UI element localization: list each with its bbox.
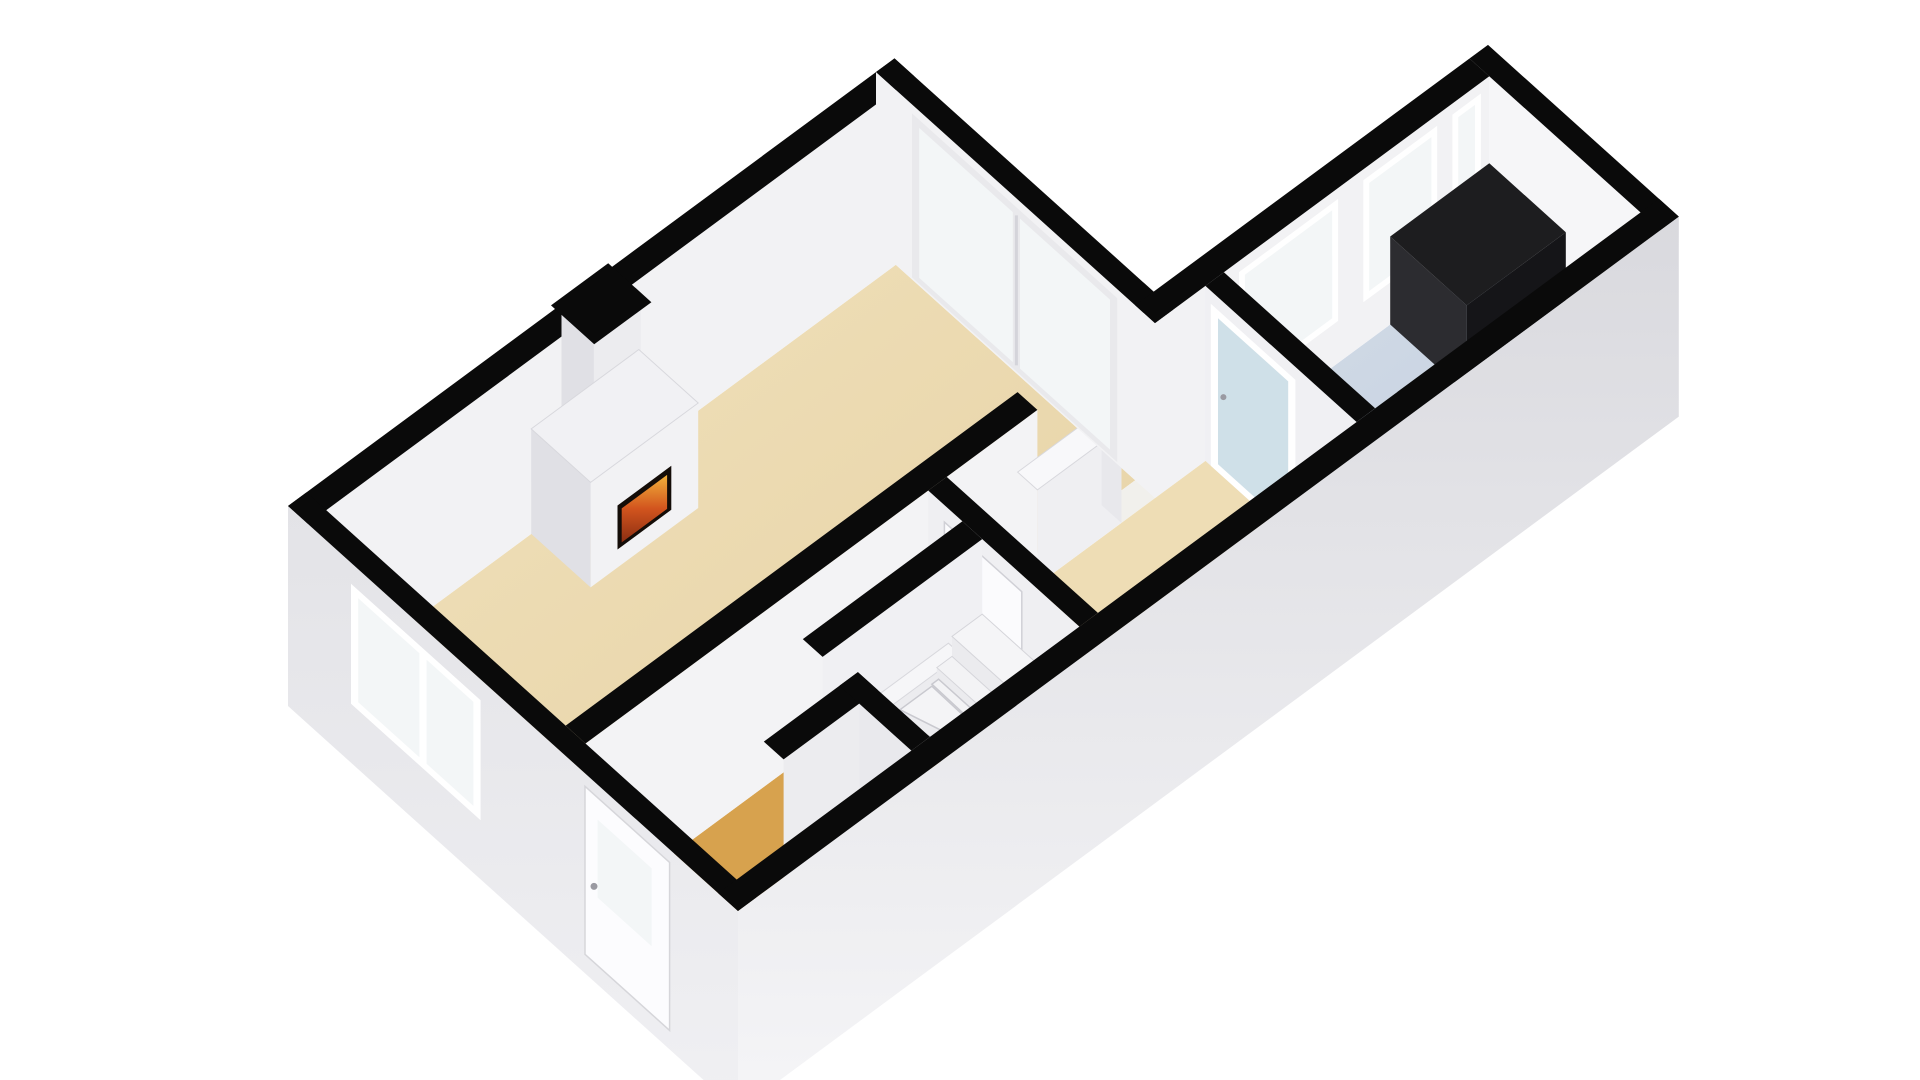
kitchen-door-handle [1220,394,1226,400]
floorplan-stage [0,0,1920,1080]
front-door-handle [591,883,598,890]
floorplan-3d-render [0,0,1920,1080]
